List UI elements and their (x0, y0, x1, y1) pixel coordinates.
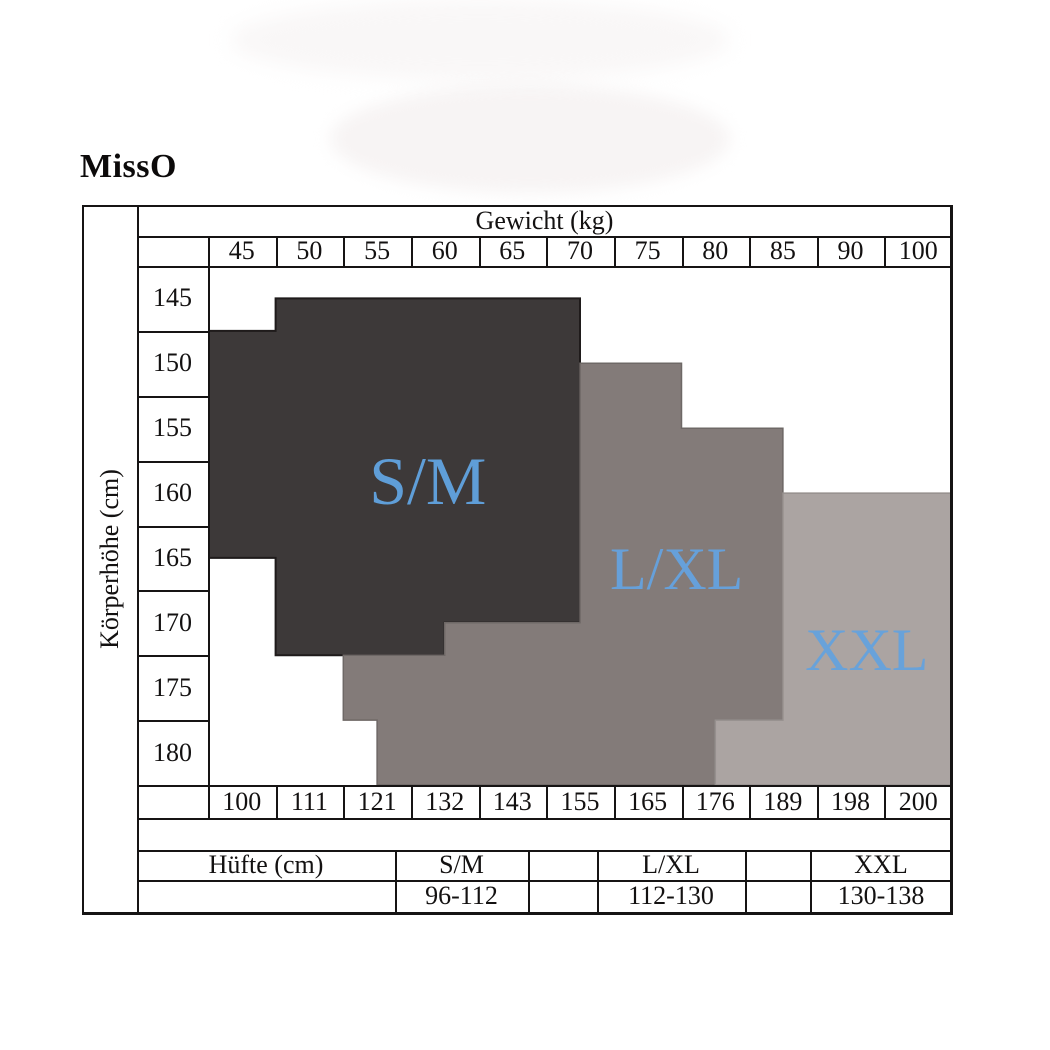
table-line (208, 236, 210, 818)
table-line (745, 850, 747, 912)
weight-tick: 80 (682, 236, 750, 266)
weight-tick: 65 (479, 236, 547, 266)
bottom-tick: 100 (208, 785, 276, 818)
height-tick: 155 (137, 396, 208, 461)
height-axis-title: Körperhöhe (cm) (82, 205, 137, 912)
table-line (137, 818, 952, 820)
hip-size-range-xxl: 130-138 (810, 880, 952, 912)
size-chart-page: MissO S/ML/XLXXLGewicht (kg)Körperhöhe (… (0, 0, 1050, 1050)
height-tick: 160 (137, 461, 208, 526)
size-regions-plot (208, 266, 952, 785)
table-line (82, 912, 952, 915)
bottom-tick: 200 (884, 785, 952, 818)
bottom-tick: 121 (343, 785, 411, 818)
height-tick: 165 (137, 526, 208, 591)
hip-size-range-s-m: 96-112 (395, 880, 528, 912)
height-axis-title-text: Körperhöhe (cm) (95, 469, 125, 649)
hip-size-label-s-m: S/M (395, 850, 528, 880)
bottom-tick: 198 (817, 785, 885, 818)
weight-tick: 45 (208, 236, 276, 266)
weight-axis-title: Gewicht (kg) (137, 205, 952, 236)
hip-size-label-l-xl: L/XL (597, 850, 745, 880)
weight-tick: 85 (749, 236, 817, 266)
region-label-s-m: S/M (369, 447, 486, 515)
weight-tick: 50 (276, 236, 344, 266)
bottom-tick: 176 (682, 785, 750, 818)
weight-tick: 100 (884, 236, 952, 266)
table-line (137, 266, 952, 268)
bottom-tick: 165 (614, 785, 682, 818)
size-chart-table: S/ML/XLXXLGewicht (kg)Körperhöhe (cm)455… (0, 0, 1050, 1050)
bottom-tick: 143 (479, 785, 547, 818)
height-tick: 170 (137, 590, 208, 655)
height-tick: 180 (137, 720, 208, 785)
bottom-tick: 189 (749, 785, 817, 818)
height-tick: 175 (137, 655, 208, 720)
region-label-l-xl: L/XL (610, 539, 743, 599)
hip-size-range-l-xl: 112-130 (597, 880, 745, 912)
height-tick: 145 (137, 266, 208, 331)
height-tick: 150 (137, 331, 208, 396)
hip-table-header: Hüfte (cm) (137, 850, 395, 880)
bottom-tick: 155 (546, 785, 614, 818)
table-line (528, 850, 530, 912)
hip-size-label-xxl: XXL (810, 850, 952, 880)
bottom-tick: 132 (411, 785, 479, 818)
weight-tick: 70 (546, 236, 614, 266)
weight-tick: 90 (817, 236, 885, 266)
region-label-xxl: XXL (805, 620, 928, 680)
weight-tick: 60 (411, 236, 479, 266)
weight-tick: 55 (343, 236, 411, 266)
weight-tick: 75 (614, 236, 682, 266)
bottom-tick: 111 (276, 785, 344, 818)
